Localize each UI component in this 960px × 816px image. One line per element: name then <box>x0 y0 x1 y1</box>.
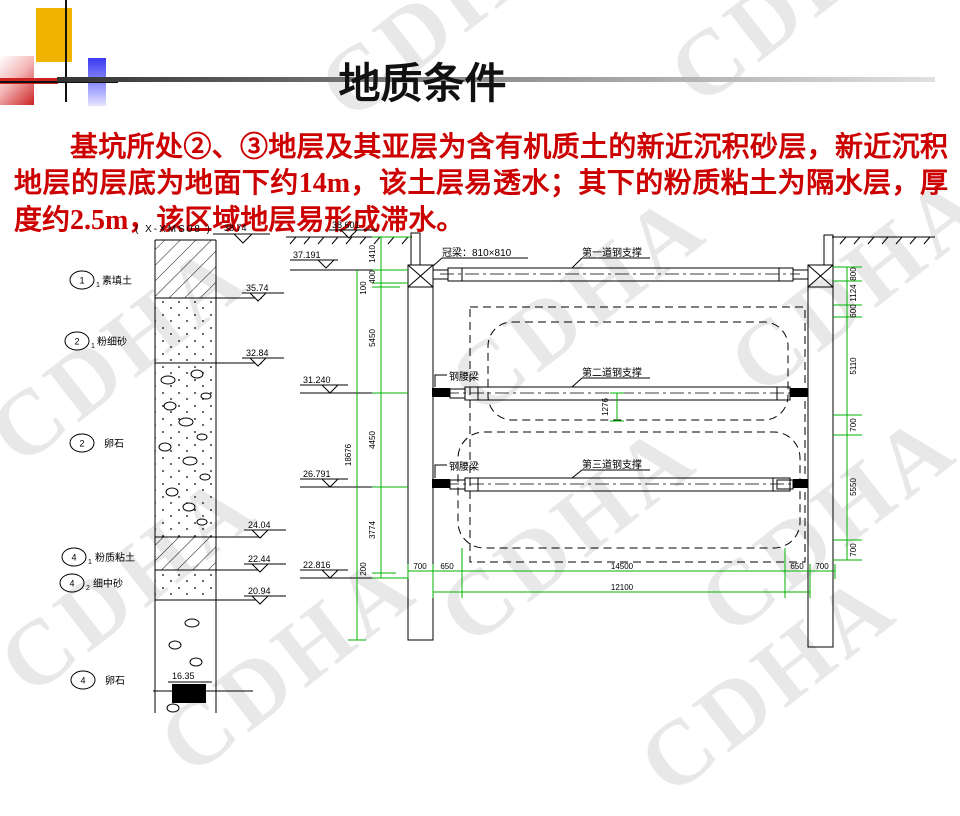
layer-bottom-elevation: 22.44 <box>248 554 271 564</box>
dim-total-18676: 18676 <box>344 443 353 466</box>
crown-elevation: 37.191 <box>293 250 321 260</box>
left-dimension-chain: 1410 400 100 5450 4450 3774 200 18676 <box>344 237 411 640</box>
dim-span-14500: 14500 <box>611 562 634 571</box>
dim-600: 600 <box>849 304 858 318</box>
layer-bottom-elevation: 35.74 <box>246 283 269 293</box>
dim-100: 100 <box>359 281 368 295</box>
layer-subnumber: 1 <box>88 559 92 566</box>
bottom-dimension-chain: 700 650 14500 650 700 12100 <box>408 548 835 598</box>
waler2-label: 钢腰梁 <box>449 370 479 383</box>
layer-number: 2 <box>79 439 84 449</box>
right-dimension-chain: 800 1124 600 5110 700 5550 700 <box>833 267 862 560</box>
elevation-triangle-icon <box>250 358 266 366</box>
dim-3774: 3774 <box>368 521 377 539</box>
steel-strut-3 <box>432 478 808 491</box>
dim-5550: 5550 <box>849 478 858 496</box>
elevation-31240: 31.240 <box>303 375 331 385</box>
borehole-id-label: ( X-XMS08 ) <box>135 224 212 235</box>
page-title: 地质条件 <box>0 50 845 111</box>
layer-subnumber: 1 <box>91 343 95 350</box>
layer-legend: 1 1 素填土 2 1 粉细砂 2 卵石 4 1 粉质粘土 4 2 细中砂 4 … <box>60 271 135 689</box>
crown-beam-label: 冠梁：810×810 <box>442 246 512 259</box>
dim-650-left: 650 <box>440 562 454 571</box>
dim-200: 200 <box>359 562 368 576</box>
excavation-bottom-marker: 16.35 <box>153 671 253 703</box>
layer-name: 细中砂 <box>93 577 123 590</box>
dim-700b: 700 <box>849 543 858 557</box>
right-diaphragm-wall <box>808 287 833 647</box>
waler3-label: 钢腰梁 <box>449 460 479 473</box>
dim-1124: 1124 <box>849 284 858 302</box>
layer-number: 2 <box>74 337 79 347</box>
layer-fill-fen-xi-sha <box>155 298 216 363</box>
ground-elevation: 38.601 <box>332 220 360 230</box>
dim-5110: 5110 <box>849 357 858 375</box>
left-wall-post <box>411 233 420 265</box>
layer-fill-xi-zhong-sha <box>155 570 216 600</box>
elevation-triangle-icon <box>234 234 252 243</box>
layer-bottom-elevation: 24.04 <box>248 520 271 530</box>
borehole-surface-elevation: 38.74 <box>224 223 247 233</box>
layer-subnumber: 2 <box>86 585 90 592</box>
layer-name: 粉质粘土 <box>95 551 135 564</box>
layer-fill-fen-zhi-nian-tu <box>155 537 216 570</box>
layer-name: 卵石 <box>105 675 125 687</box>
dim-strut-tunnel: 1276 <box>601 398 610 416</box>
dim-650-right: 650 <box>790 562 804 571</box>
dim-700: 700 <box>849 418 858 432</box>
engineering-drawing: ( X-XMS08 ) 38.74 35.74 32.84 <box>0 215 960 720</box>
elevation-26791: 26.791 <box>303 469 331 479</box>
dim-wall-700-right: 700 <box>815 562 829 571</box>
strut1-label: 第一道钢支撑 <box>582 246 642 259</box>
elevation-22816: 22.816 <box>303 560 331 570</box>
left-diaphragm-wall <box>408 287 433 640</box>
strut2-label: 第二道钢支撑 <box>582 366 642 379</box>
dim-800: 800 <box>849 267 858 281</box>
dim-wall-700-left: 700 <box>413 562 427 571</box>
layer-name: 卵石 <box>104 438 124 450</box>
layer-number: 4 <box>80 676 85 686</box>
layer-number: 4 <box>69 579 74 589</box>
dim-1410: 1410 <box>368 245 377 263</box>
lower-tunnel-outline <box>458 432 800 548</box>
steel-strut-1 <box>433 268 808 281</box>
dim-5450: 5450 <box>368 329 377 347</box>
right-wall-post <box>824 235 833 265</box>
left-elevation-markers: 37.191 31.240 26.791 22.816 <box>290 250 408 578</box>
elevation-triangle-icon <box>250 293 266 301</box>
layer-bottom-elevation: 20.94 <box>248 586 271 596</box>
layer-subnumber: 1 <box>96 282 100 289</box>
dim-400: 400 <box>368 270 377 284</box>
layer-name: 粉细砂 <box>97 335 127 348</box>
layer-name: 素填土 <box>102 274 132 287</box>
layer-fill-su-tian-tu <box>155 240 216 298</box>
layer-number: 1 <box>79 276 84 286</box>
strut3-label: 第三道钢支撑 <box>582 458 642 471</box>
dim-4450: 4450 <box>368 431 377 449</box>
excavation-cross-section: 38.601 冠梁：810×810 第一道钢支撑 <box>286 220 935 647</box>
pit-bottom-elevation: 16.35 <box>172 671 195 681</box>
dim-total-12100: 12100 <box>611 583 634 592</box>
borehole-log: ( X-XMS08 ) 38.74 35.74 32.84 <box>60 223 286 713</box>
tunnel-envelope-outline <box>470 307 805 562</box>
elevation-triangle-icon <box>252 564 268 572</box>
ground-hatch <box>840 237 930 244</box>
layer-number: 4 <box>71 553 76 563</box>
layer-bottom-elevation: 32.84 <box>246 348 269 358</box>
